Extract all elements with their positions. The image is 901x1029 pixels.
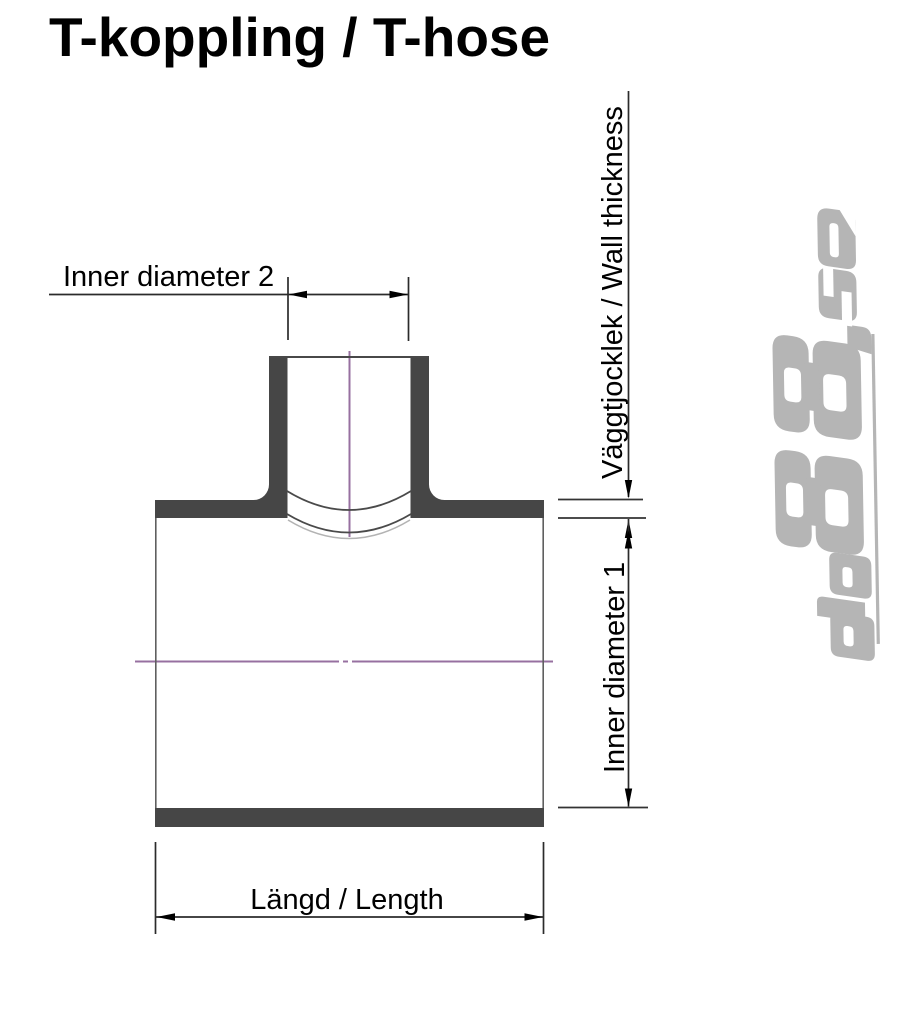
svg-text:Längd / Length: Längd / Length <box>250 884 444 916</box>
svg-text:Inner diameter 1: Inner diameter 1 <box>599 562 631 773</box>
svg-text:Inner diameter 2: Inner diameter 2 <box>63 261 274 293</box>
svg-text:T-koppling / T-hose: T-koppling / T-hose <box>49 6 550 68</box>
svg-text:Väggtjocklek / Wall thickness: Väggtjocklek / Wall thickness <box>597 106 629 479</box>
